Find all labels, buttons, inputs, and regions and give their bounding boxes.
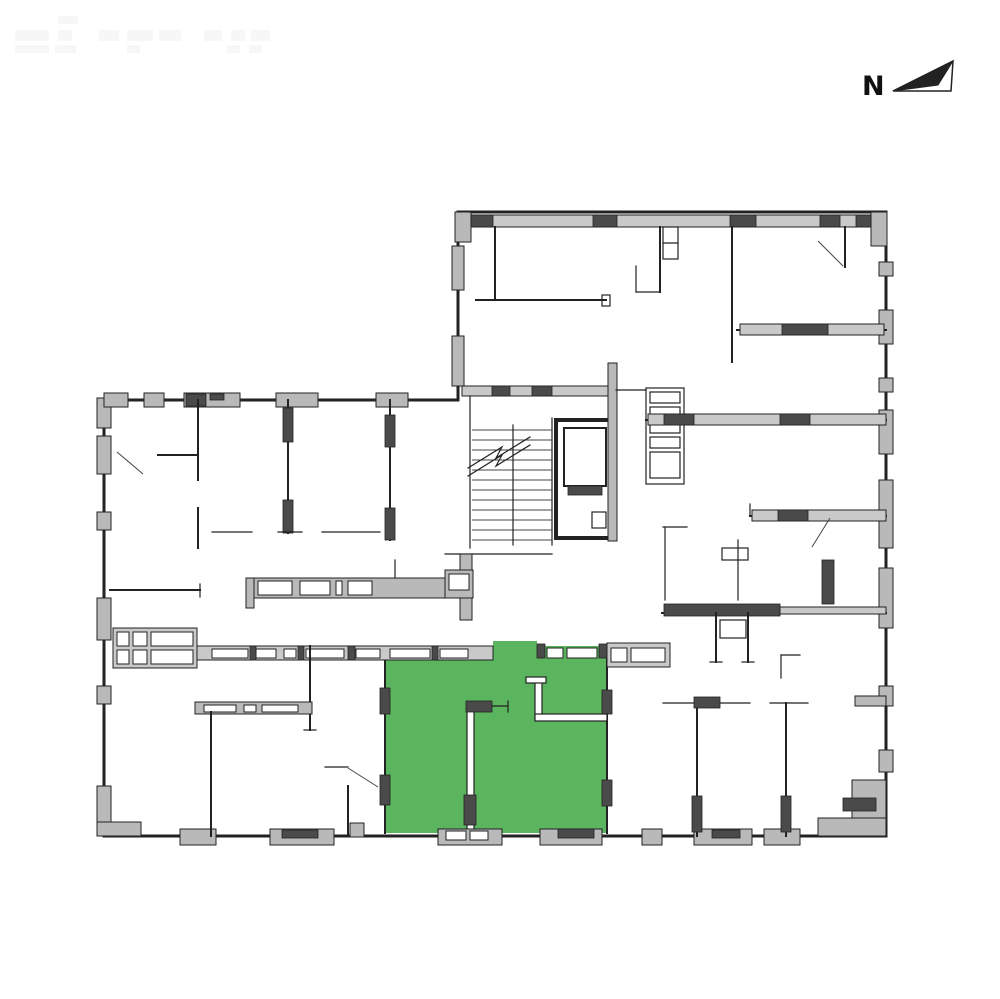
door-swing [812, 518, 830, 547]
staircase [468, 425, 552, 545]
window-band-top [462, 215, 882, 227]
floor-plan-drawing: N [0, 0, 1000, 999]
north-label: N [862, 71, 885, 102]
highlighted-unit[interactable] [380, 641, 612, 833]
door-swing [348, 768, 378, 787]
lower-window-band [197, 646, 493, 660]
right-facade-piers [818, 262, 893, 836]
floor-plan-canvas: N [0, 0, 1000, 999]
stair-elevator-core [445, 246, 617, 620]
door-swing [818, 241, 843, 266]
watermark [15, 16, 270, 53]
bathroom-fixtures [616, 388, 684, 484]
upper-block-interior [476, 227, 886, 484]
elevator [556, 420, 614, 538]
balcony-glazing [113, 628, 197, 668]
north-indicator: N [862, 61, 953, 102]
builtin-furniture-band [246, 560, 473, 608]
right-block-interior [607, 504, 886, 836]
highlighted-unit-area [385, 641, 607, 833]
stair-break-line [468, 437, 530, 468]
door-swing [117, 452, 143, 474]
